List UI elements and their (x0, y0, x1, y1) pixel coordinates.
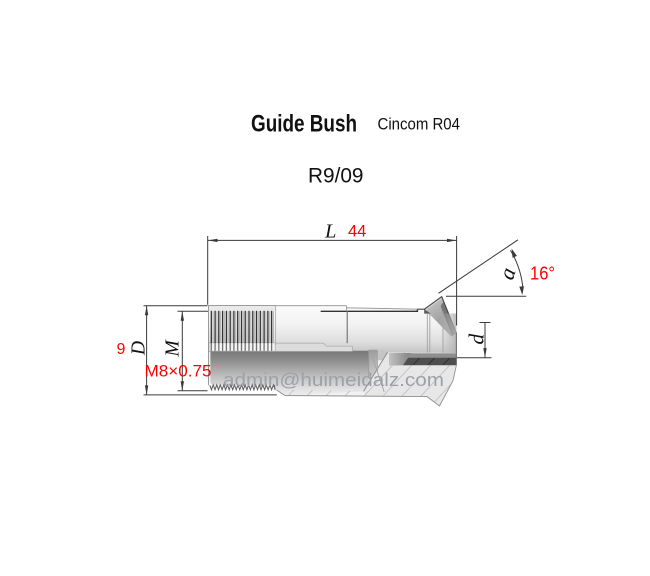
svg-text:admin@huimeidalz.com: admin@huimeidalz.com (223, 369, 444, 390)
svg-text:D: D (129, 341, 150, 356)
svg-text:Cincom R04: Cincom R04 (378, 115, 461, 134)
svg-text:M8×0.75: M8×0.75 (145, 363, 212, 381)
svg-text:a: a (493, 264, 520, 282)
svg-text:44: 44 (348, 223, 366, 241)
svg-text:16°: 16° (530, 263, 555, 284)
svg-text:L: L (324, 221, 336, 243)
svg-text:R9/09: R9/09 (308, 164, 364, 188)
svg-text:Guide Bush: Guide Bush (251, 111, 357, 138)
svg-text:d: d (465, 334, 489, 345)
svg-text:M: M (162, 339, 183, 358)
svg-text:9: 9 (117, 341, 126, 358)
